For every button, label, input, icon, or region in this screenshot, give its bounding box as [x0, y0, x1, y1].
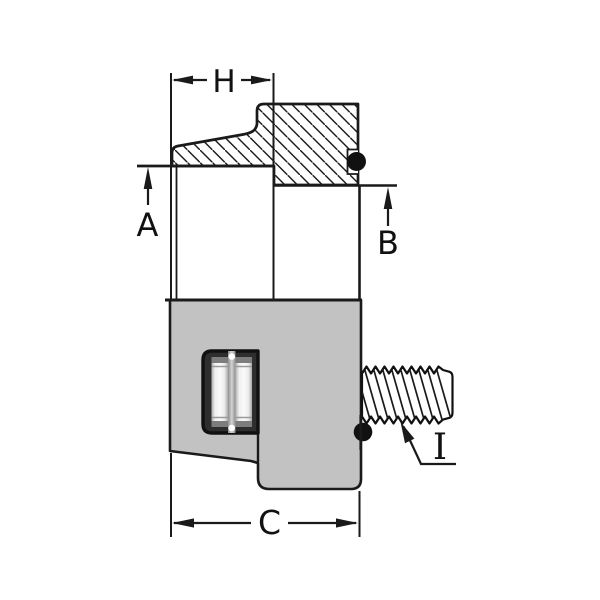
- o-ring-top: [347, 152, 366, 171]
- callout-i-arrowhead: [401, 422, 415, 443]
- roller-right-cap-bottom: [236, 421, 253, 427]
- callout-i-leader: [404, 427, 457, 465]
- bearing-cage-bar: [228, 351, 236, 433]
- dim-h-arrow-left: [172, 76, 193, 85]
- roller-left: [212, 357, 229, 427]
- dim-label-c: C: [258, 503, 281, 542]
- roller-left-cap-top: [212, 357, 229, 363]
- roller-right-cap-top: [236, 357, 253, 363]
- dim-c-arrow-right: [336, 518, 358, 527]
- body-silhouette: [170, 300, 361, 489]
- dim-label-i: I: [433, 427, 447, 468]
- dim-label-h: H: [212, 64, 235, 100]
- roller-right: [236, 357, 253, 427]
- drawing-canvas: H A B C I: [0, 0, 600, 600]
- callout-i: I: [401, 422, 457, 468]
- dim-a: A: [137, 167, 159, 244]
- bearing-detail: [203, 351, 258, 433]
- cage-pin-top: [228, 353, 235, 360]
- dim-h-arrow-right: [251, 76, 272, 85]
- dim-label-b: B: [377, 224, 399, 262]
- cage-pin-bottom: [228, 425, 235, 432]
- dim-b-arrow-up: [384, 187, 393, 209]
- drawing-page: H A B C I: [0, 0, 600, 600]
- fitting-body: [165, 300, 362, 489]
- o-ring-bottom: [354, 423, 373, 442]
- dim-c-arrow-left: [172, 518, 194, 527]
- dim-h: H: [172, 64, 272, 100]
- roller-left-cap-bottom: [212, 421, 229, 427]
- flange-cross-section: [172, 104, 366, 185]
- flange-section-hatch: [172, 104, 358, 185]
- dim-a-arrow-up: [144, 167, 153, 189]
- dim-label-a: A: [137, 206, 159, 244]
- dim-b: B: [377, 187, 399, 262]
